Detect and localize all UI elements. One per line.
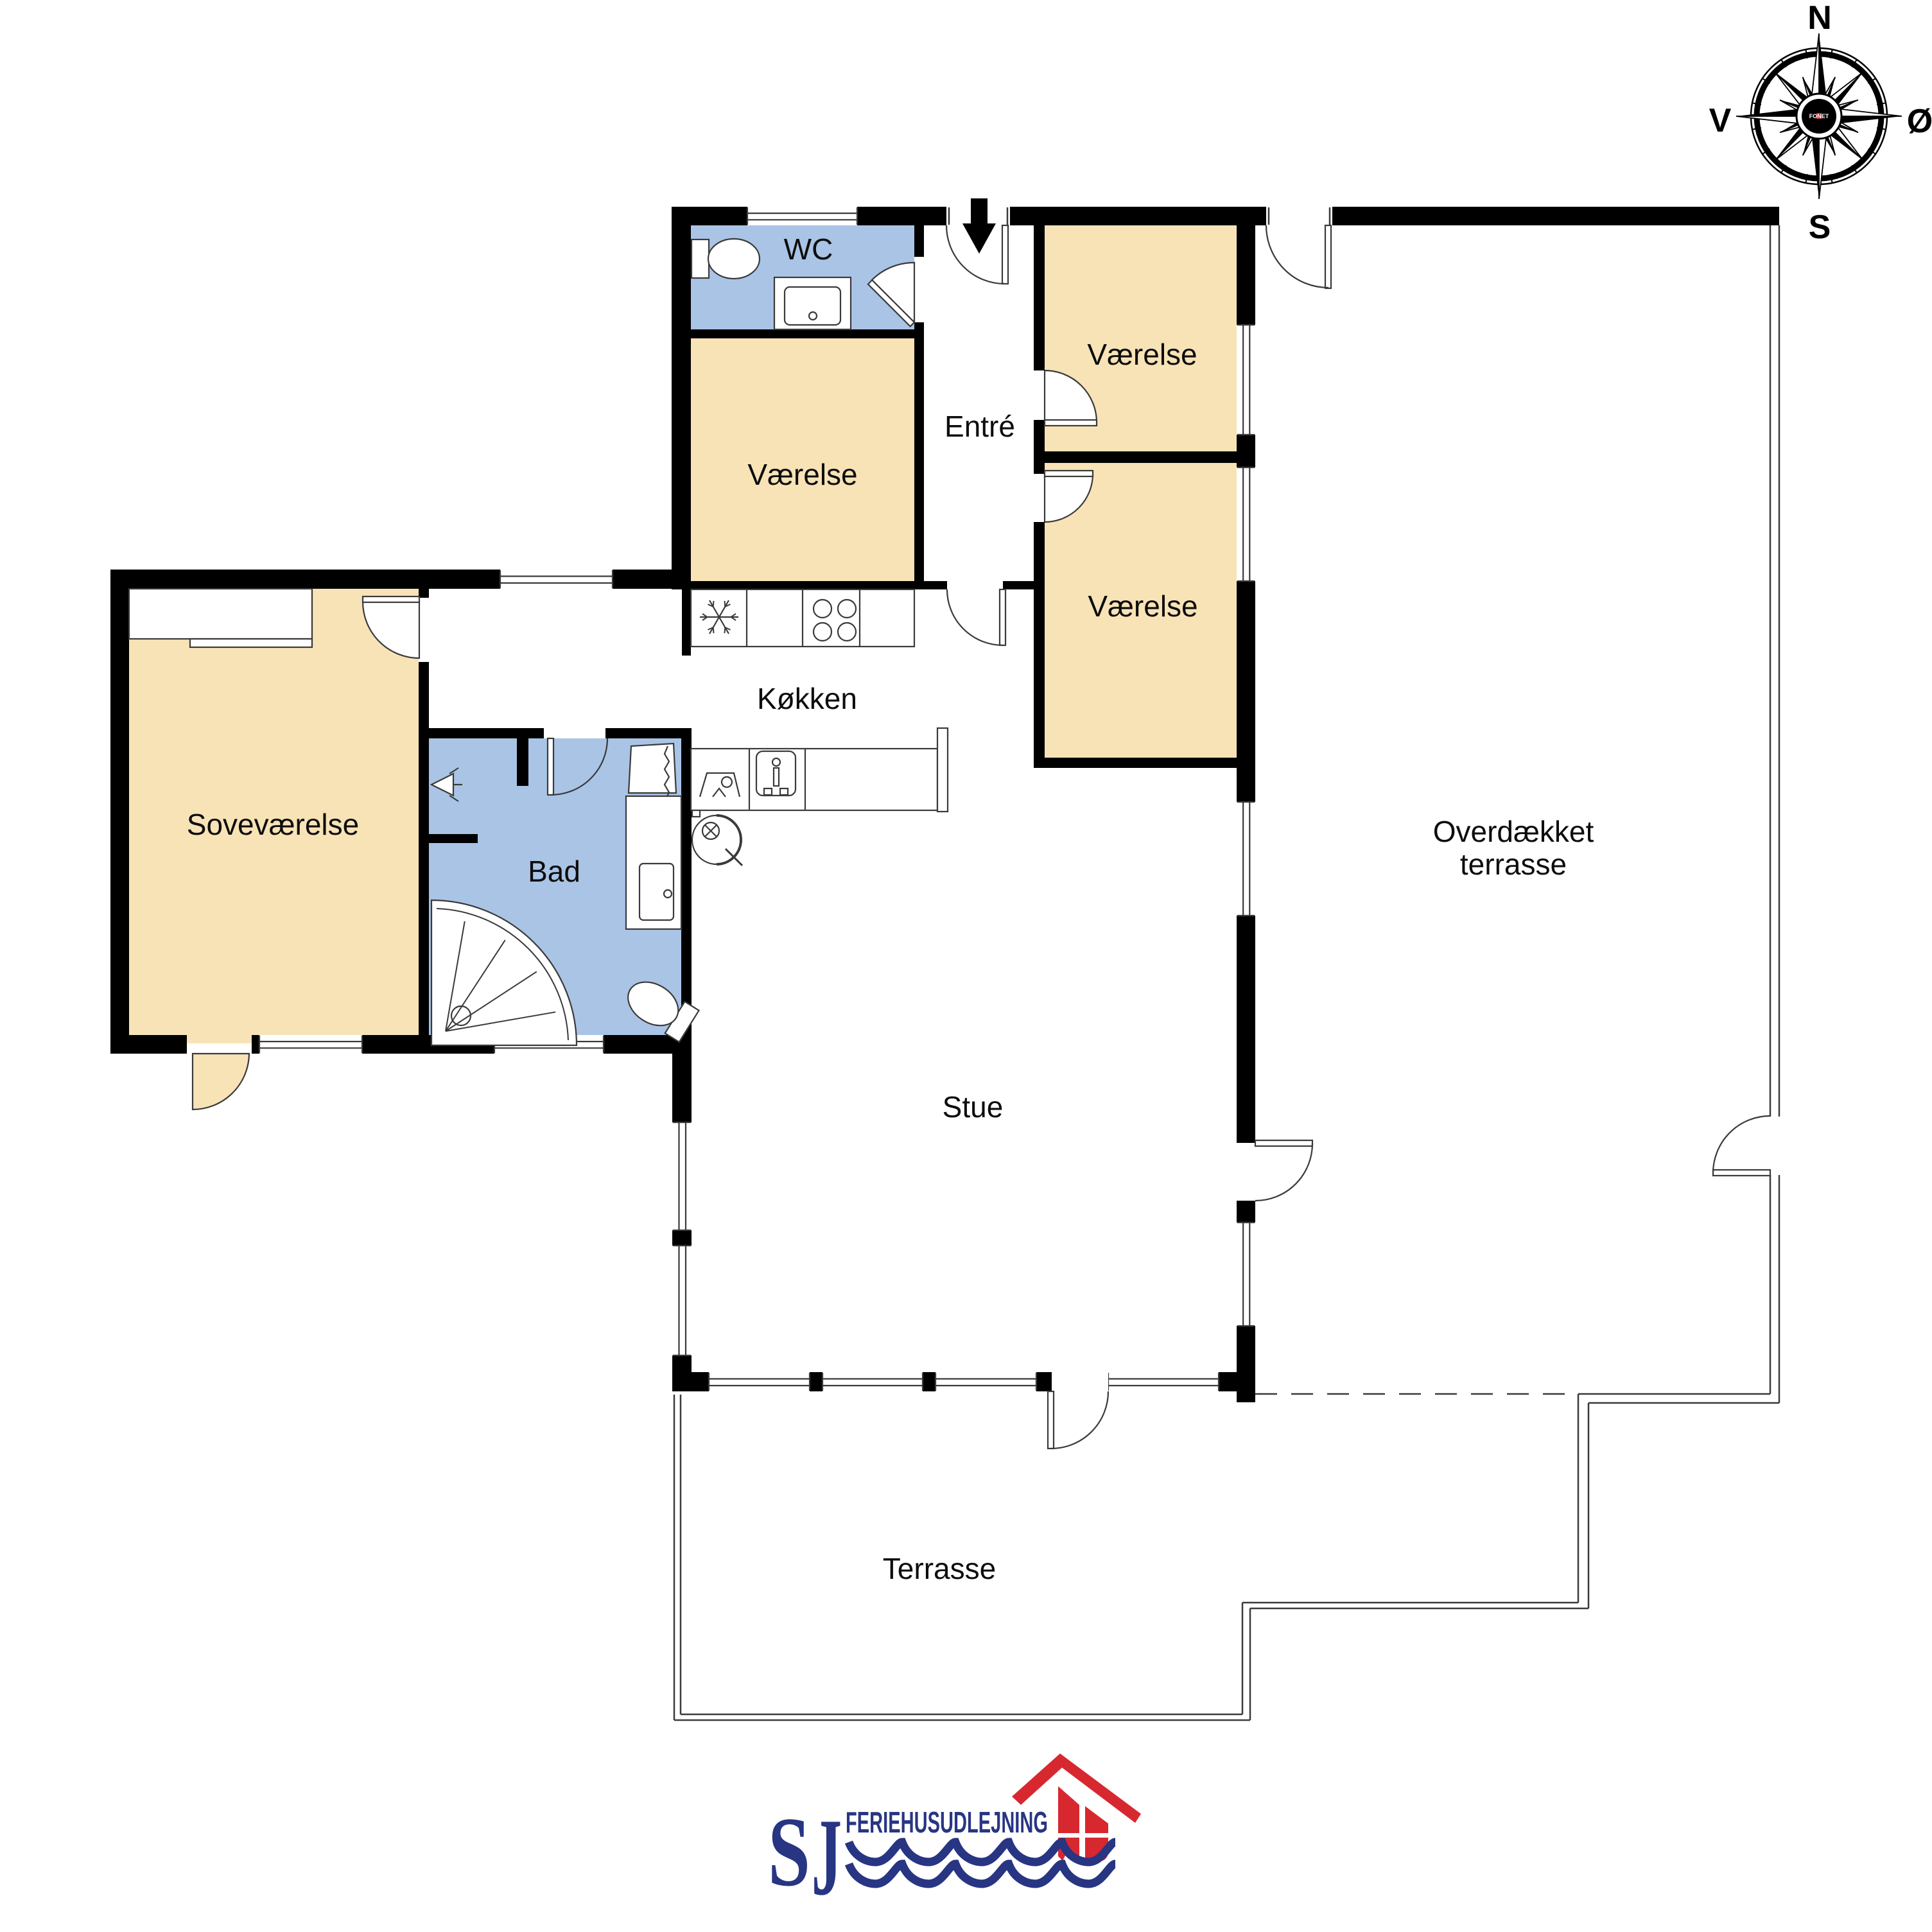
svg-text:Køkken: Køkken <box>757 682 857 715</box>
svg-text:Soveværelse: Soveværelse <box>187 808 359 841</box>
svg-text:Bad: Bad <box>528 855 580 888</box>
svg-text:Entré: Entré <box>944 410 1015 443</box>
svg-text:Værelse: Værelse <box>1087 338 1197 371</box>
svg-text:Overdækket: Overdækket <box>1433 815 1594 848</box>
svg-text:Stue: Stue <box>943 1090 1004 1124</box>
svg-text:FERIEHUSUDLEJNING: FERIEHUSUDLEJNING <box>846 1806 1048 1839</box>
svg-text:Værelse: Værelse <box>1088 589 1197 623</box>
svg-text:S: S <box>768 1797 810 1907</box>
svg-text:S: S <box>1809 209 1831 246</box>
svg-text:Ø: Ø <box>1907 103 1932 140</box>
svg-text:Terrasse: Terrasse <box>883 1552 996 1585</box>
svg-text:Værelse: Værelse <box>747 458 857 491</box>
svg-text:terrasse: terrasse <box>1460 848 1567 881</box>
svg-text:V: V <box>1709 102 1732 139</box>
svg-text:WC: WC <box>784 232 833 266</box>
svg-text:FONET: FONET <box>1809 113 1829 119</box>
svg-text:J: J <box>812 1797 842 1919</box>
svg-text:N: N <box>1807 0 1832 37</box>
